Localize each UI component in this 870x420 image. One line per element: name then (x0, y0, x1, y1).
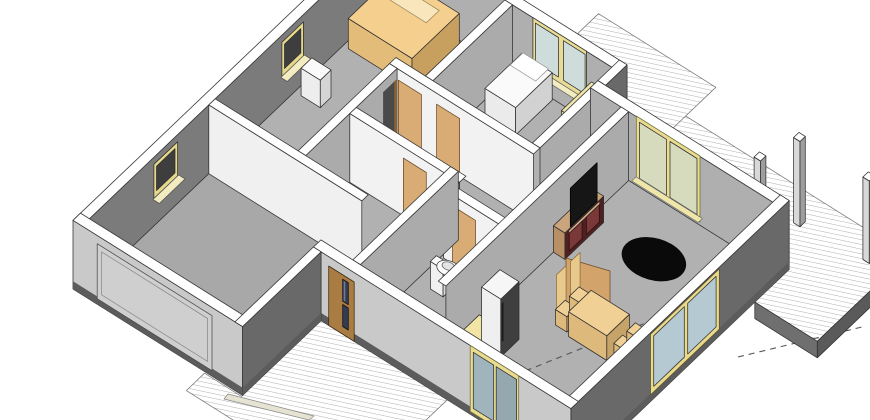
patio-column-mid-front (794, 138, 800, 227)
patio-column-mid-side (800, 136, 805, 226)
door-garage-edge (394, 79, 397, 140)
patio-column-far-front (863, 177, 869, 264)
front-door-lite-top (343, 279, 349, 305)
house-3d-cutaway-view (0, 0, 870, 420)
front-door-lite-streak (344, 281, 346, 302)
front-door-lite-bottom (343, 305, 349, 331)
fridge-handle (502, 302, 504, 342)
model-viewport[interactable] (0, 0, 870, 420)
